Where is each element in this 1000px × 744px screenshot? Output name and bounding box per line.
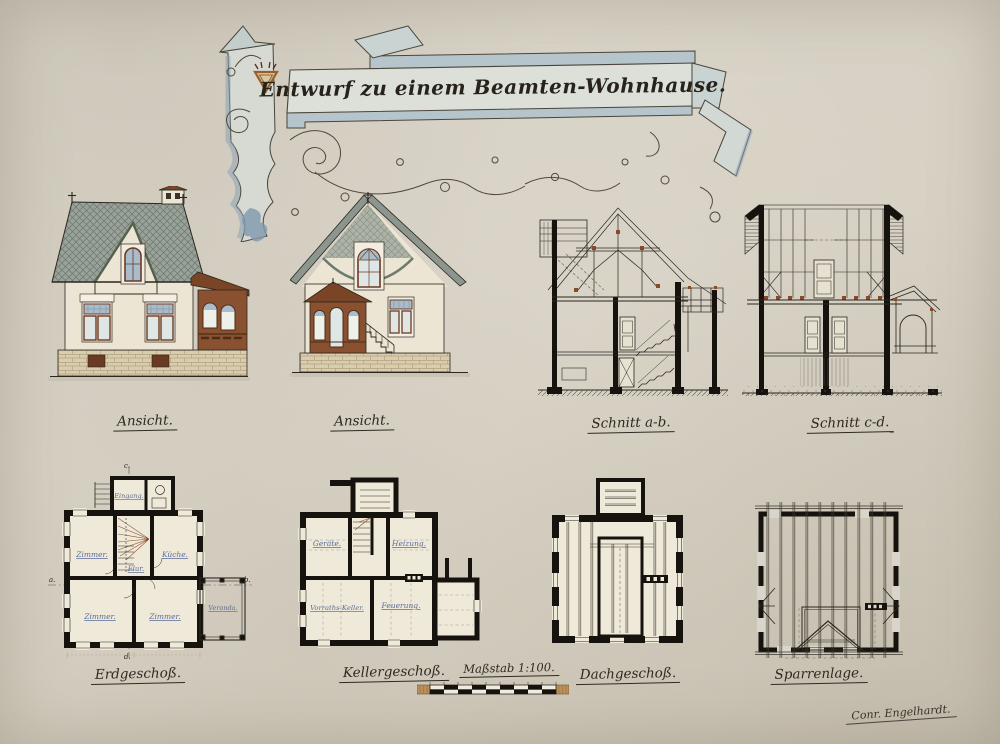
basement-plan: Geräte. Heizung. Vorraths-Keller. Feueru… (293, 470, 488, 660)
section-marker-b: b. (244, 576, 251, 584)
checker-segments (430, 685, 556, 694)
room-label: Heizung. (391, 539, 426, 548)
brick-base (300, 353, 450, 372)
brick-base (58, 350, 247, 376)
ground-shadow (48, 377, 250, 381)
caption-plan-ground: Erdgeschoß. (91, 666, 185, 684)
room-label: Veranda. (208, 604, 237, 612)
section-marker-c: c. (124, 462, 130, 470)
room-label: Feuerung. (381, 601, 421, 610)
room-label: Eingang. (113, 492, 143, 500)
room-label: Geräte. (313, 539, 341, 548)
elevation-gable-drawing (290, 192, 470, 377)
attic-plan (550, 478, 685, 648)
veranda (890, 286, 940, 353)
chimney-block (865, 603, 887, 610)
annex (435, 558, 477, 638)
gable-arched-window (354, 242, 384, 290)
veranda (191, 272, 249, 350)
entrance-projection (330, 480, 396, 515)
room-label: Zimmer. (83, 612, 115, 621)
section-ab-drawing (538, 200, 728, 396)
caption-plan-attic: Dachgeschoß. (576, 666, 680, 684)
section-marker-d: d. (124, 653, 131, 660)
room-label: Zimmer. (148, 612, 180, 621)
section-marker-a: a. (49, 576, 55, 584)
gable-window (121, 244, 145, 284)
caption-section-cd: Schnitt c-d. (807, 415, 894, 433)
ground-floor-plan: Zimmer. Küche. Flur. Zimmer. Zimmer. Ver… (48, 460, 253, 660)
elevation-side-drawing (48, 186, 250, 382)
entrance-projection (598, 480, 643, 515)
caption-elevation2: Ansicht. (330, 413, 394, 431)
caption-plan-basement: Kellergeschoß. (339, 664, 449, 682)
room-label: Zimmer. (75, 550, 107, 559)
architect-signature: Conr. Engelhardt. (845, 702, 957, 725)
gable-frame (793, 607, 865, 652)
room-label: Küche. (161, 550, 188, 559)
main-walls (67, 513, 200, 645)
scale-bar (417, 682, 569, 698)
chimney-block (643, 575, 668, 583)
plates (755, 506, 903, 655)
balcony-left (540, 220, 587, 257)
caption-scale: Maßstab 1:100. (459, 661, 559, 677)
attic-door (814, 260, 834, 298)
room-label: Vorraths-Keller. (310, 604, 364, 612)
chimney-block (405, 574, 423, 582)
caption-elevation1: Ansicht. (113, 413, 177, 431)
wall-band (757, 510, 900, 654)
ground-shadow (290, 373, 470, 377)
facade-window-right (143, 294, 177, 342)
cellar-wall-hatch (800, 358, 850, 386)
foundation (742, 386, 942, 396)
stairs (636, 320, 676, 388)
drawing-sheet: Entwurf zu einem Beamten-Wohnhause. (0, 0, 1000, 744)
caption-section-ab: Schnitt a-b. (587, 415, 674, 433)
rafter-plan (755, 500, 903, 662)
caption-plan-rafters: Sparrenlage. (771, 666, 868, 684)
facade-window-left (80, 294, 114, 342)
room-label: Flur. (127, 565, 144, 573)
banner-ribbon (287, 26, 751, 176)
side-window (388, 297, 414, 337)
dimension-line (67, 652, 200, 658)
rafters (767, 502, 886, 658)
sheet-title: Entwurf zu einem Beamten-Wohnhause. (258, 73, 726, 102)
section-cd-drawing (742, 200, 942, 396)
cut-walls (552, 220, 717, 390)
